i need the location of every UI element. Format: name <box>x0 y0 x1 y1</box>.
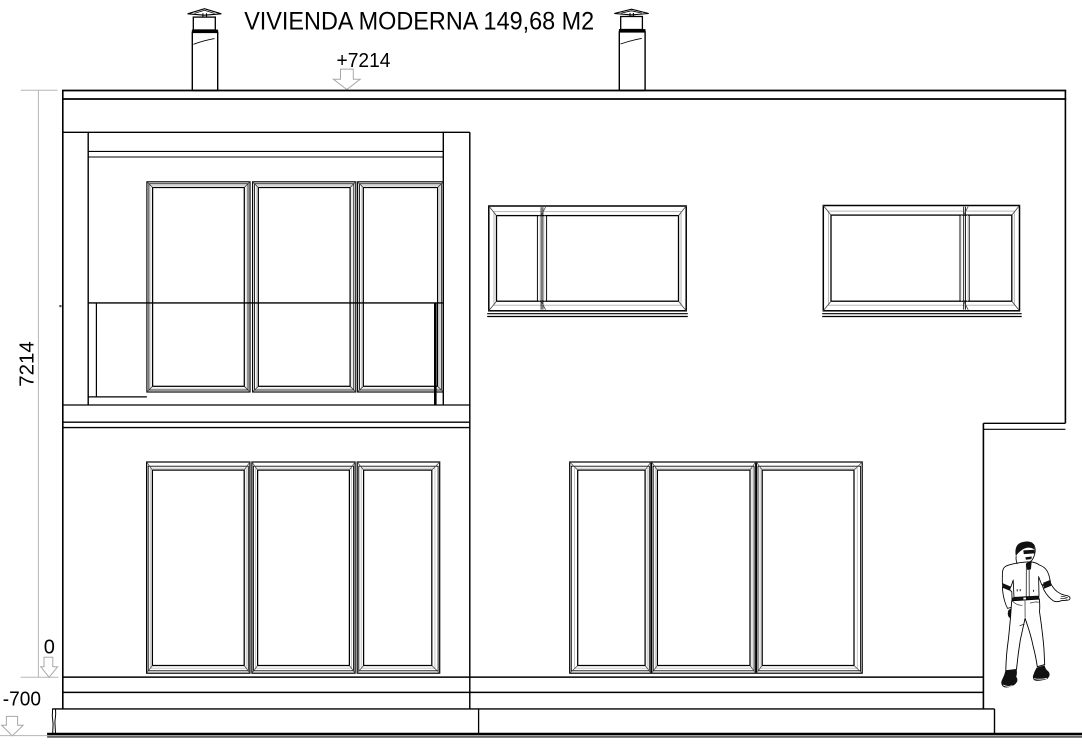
svg-text:VIVIENDA MODERNA 149,68 M2: VIVIENDA MODERNA 149,68 M2 <box>244 7 594 35</box>
svg-text:-700: -700 <box>3 689 41 711</box>
svg-text:7214: 7214 <box>17 341 39 387</box>
svg-text:0: 0 <box>44 636 55 658</box>
